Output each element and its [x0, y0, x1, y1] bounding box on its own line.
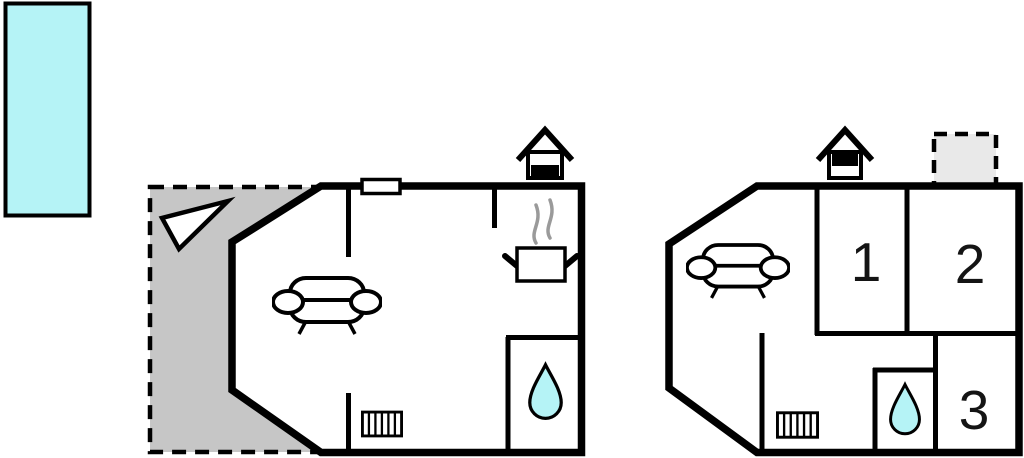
room-1-label: 1	[851, 231, 882, 293]
right-floorplan: 1 2 3	[669, 130, 1019, 453]
chimney-icon	[818, 130, 872, 178]
radiator-icon	[362, 412, 401, 436]
room-2-label: 2	[955, 233, 986, 295]
pool-icon	[6, 4, 90, 216]
radiator-icon	[777, 413, 817, 437]
floorplan-canvas: 1 2 3	[0, 0, 1024, 458]
left-building-outline	[232, 186, 582, 453]
floorplan-page: 1 2 3	[0, 0, 1024, 458]
left-floorplan	[150, 130, 583, 453]
window-icon	[362, 180, 400, 194]
chimney-icon	[518, 130, 572, 178]
annex-icon	[934, 134, 996, 186]
room-3-label: 3	[959, 379, 990, 441]
